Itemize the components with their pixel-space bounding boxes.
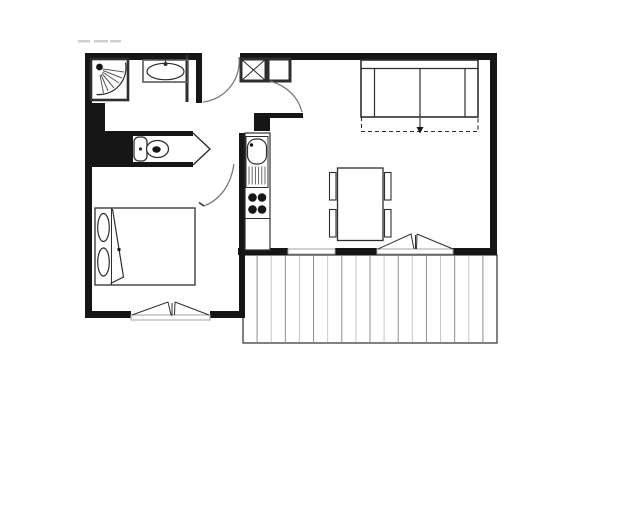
bed-fold-dot — [118, 248, 121, 251]
shower — [91, 59, 128, 100]
toilet-button — [139, 147, 142, 150]
bedroom-door-arc — [204, 164, 234, 206]
casement-leaf-right — [175, 302, 210, 315]
chair — [330, 173, 337, 201]
pillow — [98, 248, 110, 276]
artifact-dash — [110, 40, 121, 43]
living-room-door-arc — [270, 81, 302, 112]
kitchen-unit — [245, 133, 270, 250]
casement-leaf-left — [132, 302, 171, 315]
entrance-door-swing-arc — [203, 57, 239, 102]
pillow — [98, 214, 110, 242]
kitchen-sink-basin — [248, 139, 267, 164]
chair — [385, 210, 392, 238]
artifact-dash — [78, 40, 90, 43]
dining-table — [338, 168, 384, 241]
wall-right — [490, 53, 497, 255]
sofa-bed-arrow-head — [417, 127, 424, 134]
bedroom-window-sill — [131, 315, 210, 320]
washbasin — [143, 60, 188, 82]
balcony-door-sill — [377, 249, 453, 254]
burner — [248, 193, 257, 202]
wall-bedroom-bottom-1 — [85, 311, 131, 318]
kitchen-sink-tap — [250, 143, 253, 146]
dining-set — [330, 168, 392, 241]
chair — [385, 173, 392, 201]
hall-closets — [241, 59, 290, 81]
bed-outline — [95, 208, 195, 285]
casement-leaf-right — [417, 234, 454, 249]
floorplan-svg — [0, 0, 640, 524]
toilet — [134, 137, 169, 161]
wall-hall-partition — [270, 113, 303, 118]
double-bed — [95, 208, 195, 285]
print-artifact — [78, 40, 121, 43]
toilet-door-wedge — [193, 133, 210, 165]
burner — [248, 205, 257, 214]
sofa-bed — [361, 60, 478, 134]
living-room-window — [288, 249, 335, 254]
shower-tray — [91, 59, 128, 100]
wall-living-bottom-3 — [453, 248, 497, 255]
floor-plan-page — [0, 0, 640, 524]
bedroom-door-tick — [199, 203, 204, 207]
toilet-bowl-center — [152, 146, 160, 152]
wall-living-bottom-2 — [335, 248, 377, 255]
wall-shower-side — [92, 103, 105, 131]
wall-kitchen-divider — [239, 133, 245, 318]
closet-box — [268, 59, 290, 81]
washbasin-tap — [164, 62, 168, 66]
wall-hall-stub — [254, 113, 270, 131]
bedroom-window — [132, 302, 209, 316]
burner — [258, 193, 267, 202]
wall-bathroom-partition — [196, 53, 202, 103]
wall-wc-duct — [92, 131, 133, 167]
wall-bedroom-bottom-2 — [210, 311, 243, 318]
chair — [330, 210, 337, 238]
balcony — [243, 255, 497, 343]
burner — [258, 205, 267, 214]
artifact-dash — [94, 40, 108, 43]
shower-drain — [96, 64, 103, 71]
